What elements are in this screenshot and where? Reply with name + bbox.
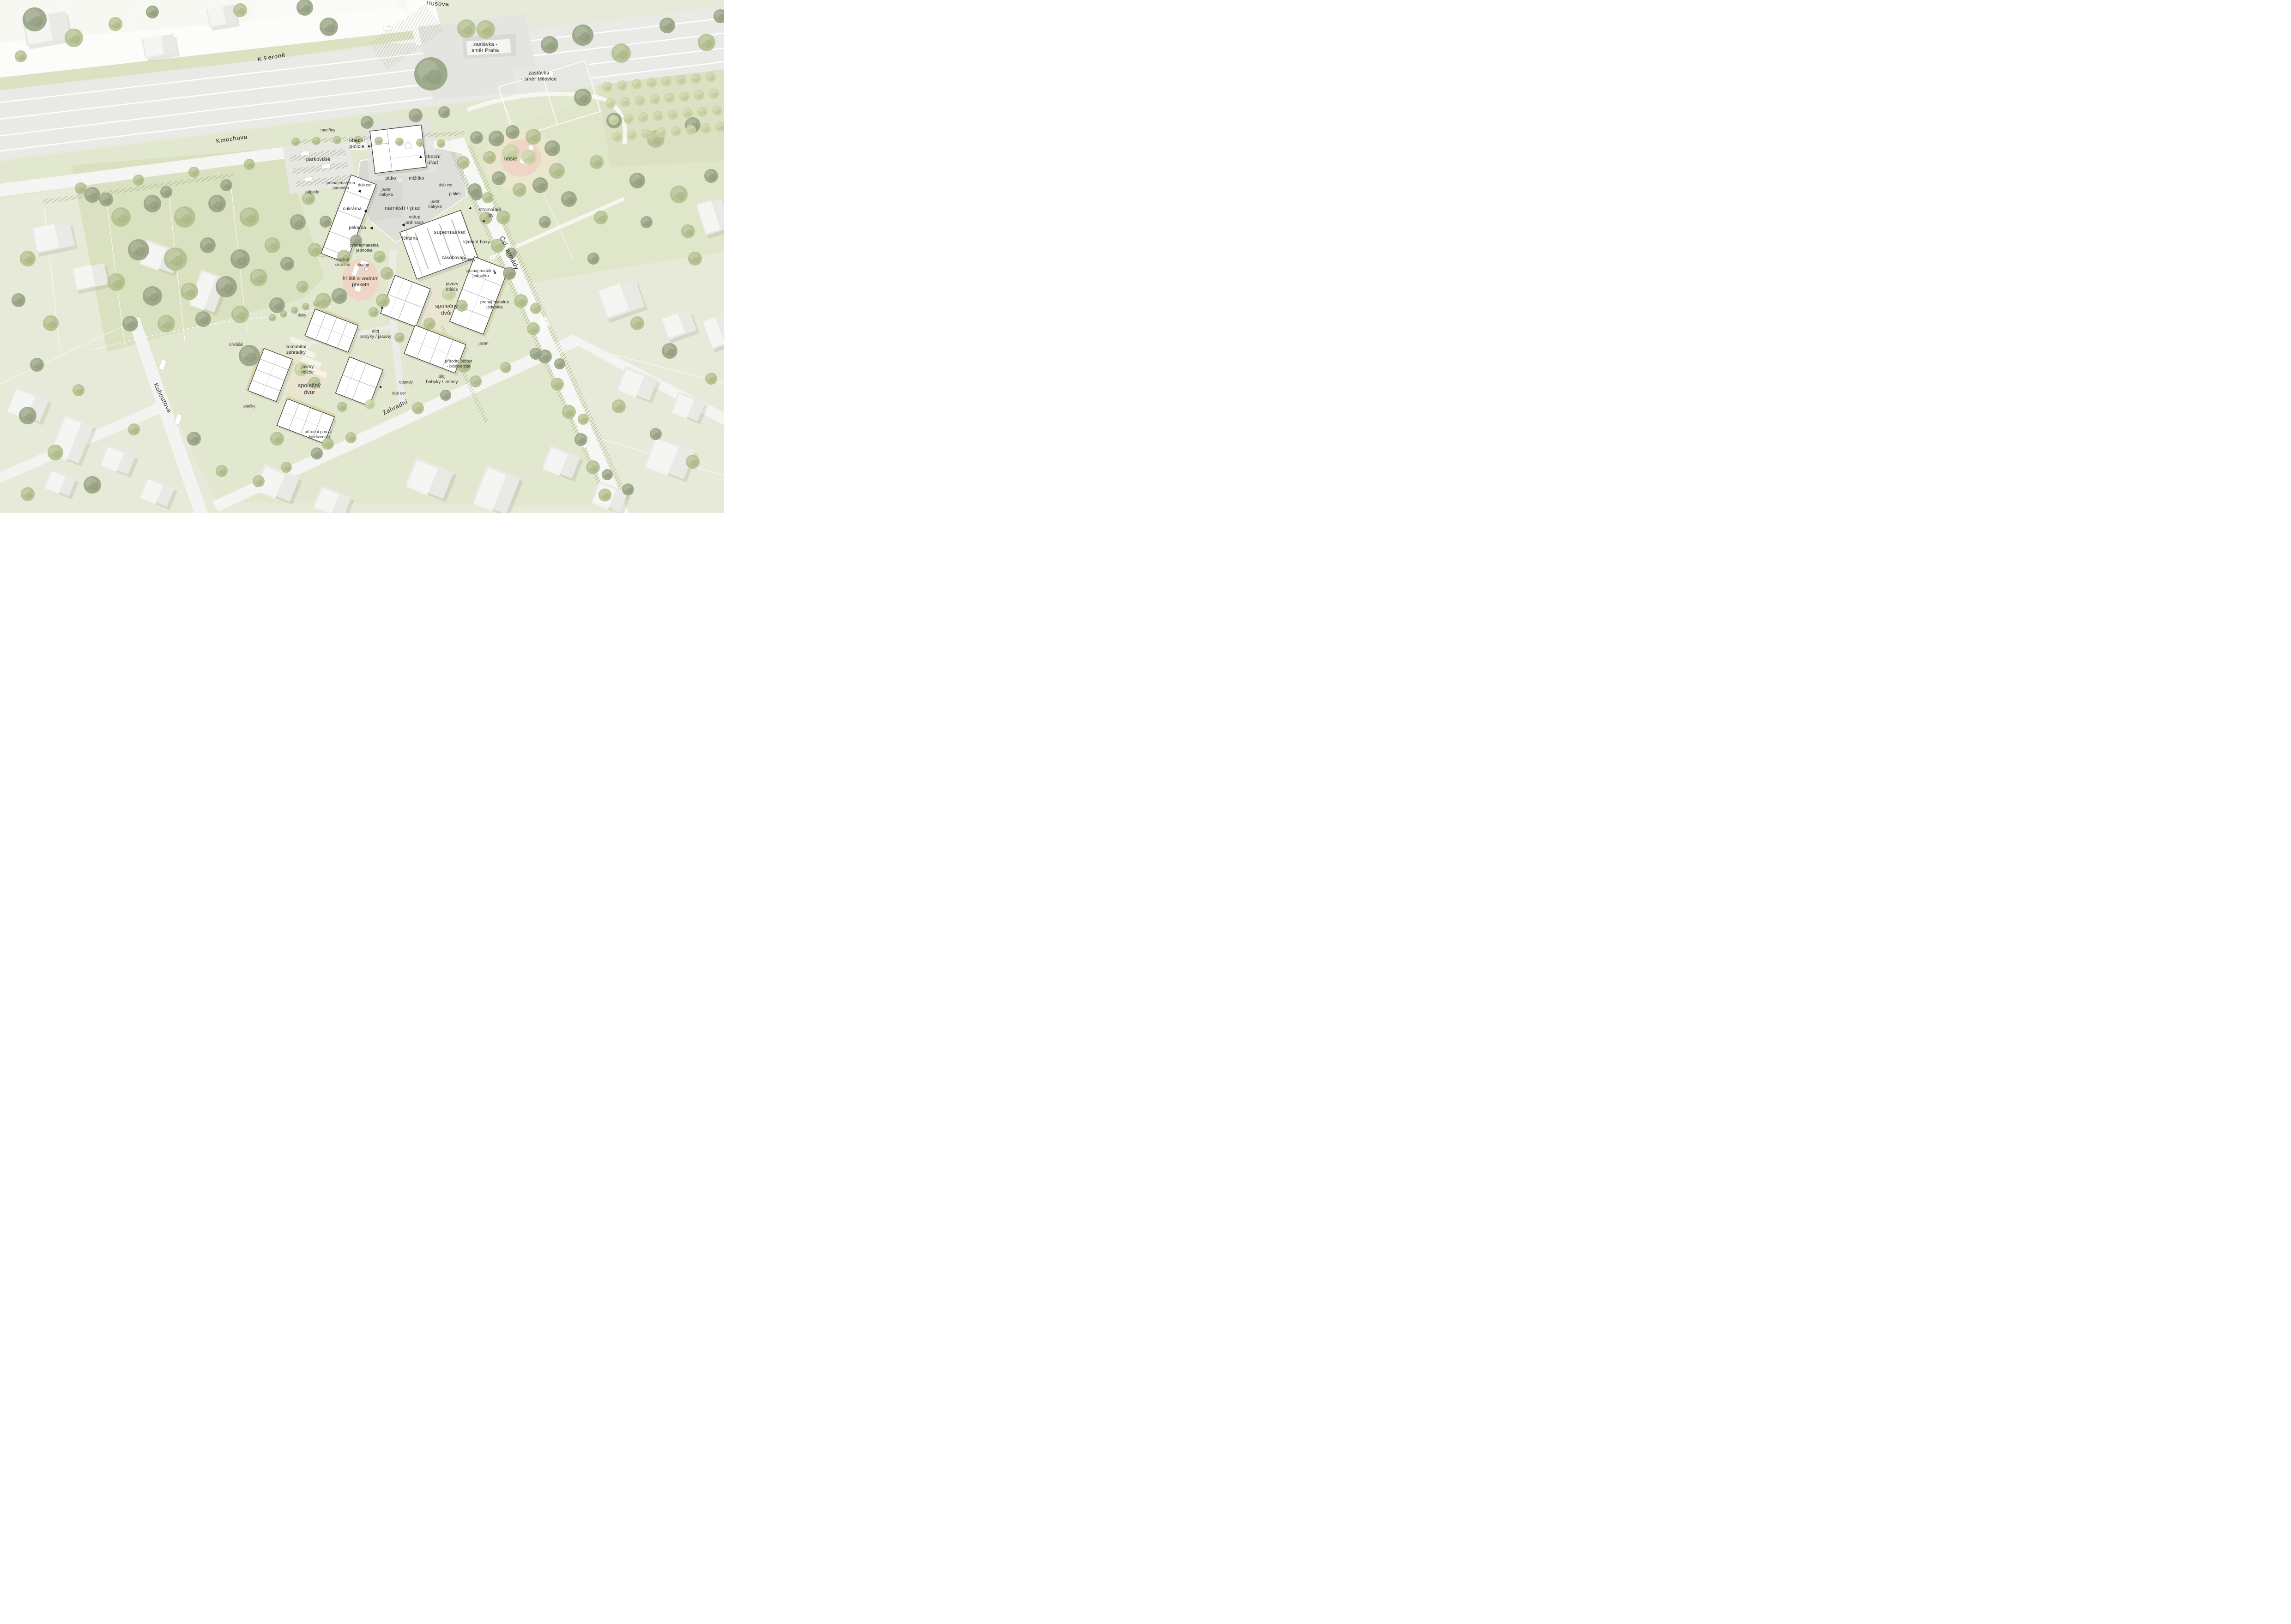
site-plan-map: HusovaK FeroněKmochovaČsl. armádyZahradn… [0, 0, 724, 513]
site-plan-canvas [0, 0, 724, 513]
